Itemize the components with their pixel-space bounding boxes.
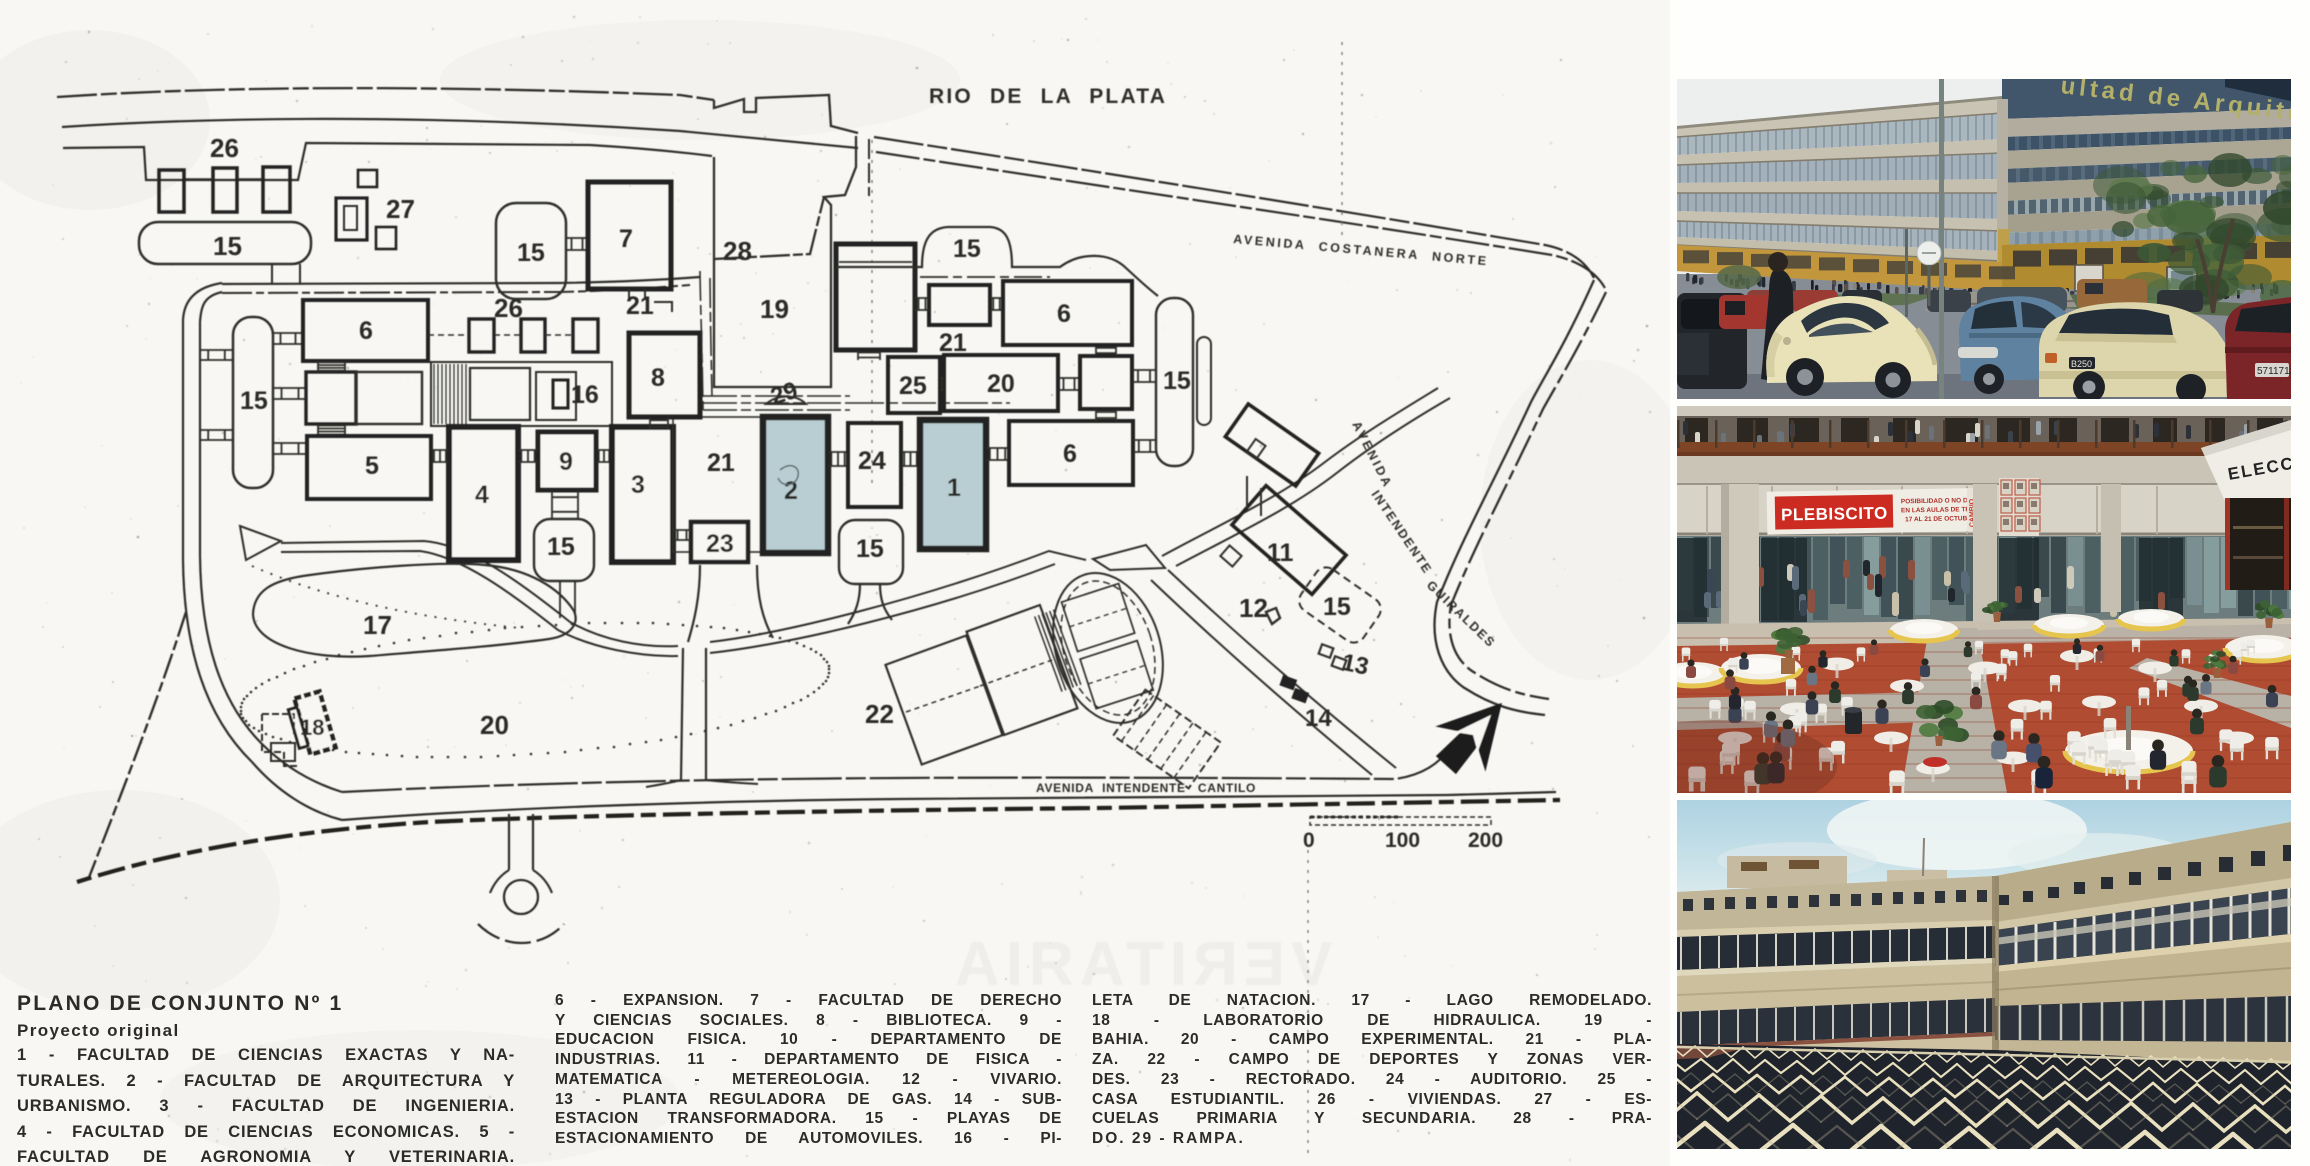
- svg-text:15: 15: [517, 239, 545, 267]
- svg-text:21: 21: [707, 449, 735, 477]
- svg-text:21: 21: [626, 292, 654, 320]
- svg-text:6: 6: [1063, 440, 1077, 468]
- svg-text:13: 13: [1339, 649, 1371, 681]
- svg-text:12: 12: [1239, 593, 1268, 623]
- svg-text:26: 26: [210, 133, 239, 163]
- svg-text:27: 27: [386, 194, 415, 224]
- svg-text:21: 21: [939, 329, 967, 357]
- svg-text:15: 15: [547, 533, 575, 561]
- svg-text:6: 6: [1057, 300, 1071, 328]
- svg-text:15: 15: [1163, 367, 1191, 395]
- svg-text:AVENIDA INTENDENTE CANTILO: AVENIDA INTENDENTE CANTILO: [1036, 781, 1256, 795]
- svg-text:25: 25: [899, 372, 927, 400]
- svg-text:1: 1: [947, 474, 961, 502]
- svg-text:6: 6: [359, 317, 373, 345]
- svg-text:18: 18: [300, 715, 324, 740]
- svg-text:22: 22: [865, 699, 894, 729]
- svg-text:14: 14: [1305, 705, 1332, 732]
- svg-text:19: 19: [760, 294, 789, 324]
- svg-text:8: 8: [651, 364, 665, 392]
- svg-text:17 AL 21 DE OCTUBRE: 17 AL 21 DE OCTUBRE: [1905, 515, 1977, 523]
- svg-text:4: 4: [475, 481, 489, 509]
- svg-text:5: 5: [365, 452, 379, 480]
- svg-text:AIRATIЯƎV: AIRATIЯƎV: [955, 930, 1338, 999]
- svg-text:RIO DE LA PLATA: RIO DE LA PLATA: [929, 85, 1167, 108]
- svg-text:100: 100: [1385, 829, 1420, 852]
- svg-text:15: 15: [953, 235, 981, 263]
- svg-text:20: 20: [987, 370, 1015, 398]
- svg-text:B250: B250: [2071, 359, 2092, 369]
- svg-text:15: 15: [213, 231, 242, 261]
- svg-text:PLEBISCITO: PLEBISCITO: [1781, 504, 1888, 525]
- svg-text:17: 17: [363, 610, 392, 640]
- svg-text:15: 15: [240, 387, 268, 415]
- svg-text:15: 15: [1323, 593, 1351, 621]
- svg-text:20: 20: [480, 710, 509, 740]
- svg-text:16: 16: [571, 381, 599, 409]
- svg-text:200: 200: [1468, 829, 1503, 852]
- svg-text:15: 15: [856, 535, 884, 563]
- svg-text:28: 28: [723, 236, 752, 266]
- svg-text:0: 0: [1303, 829, 1315, 852]
- svg-text:5711712: 5711712: [2257, 366, 2291, 377]
- svg-text:23: 23: [706, 530, 734, 558]
- svg-text:9: 9: [559, 448, 573, 476]
- svg-text:24: 24: [858, 447, 886, 475]
- svg-text:11: 11: [1267, 539, 1294, 567]
- svg-text:3: 3: [631, 471, 645, 499]
- svg-text:7: 7: [619, 225, 633, 253]
